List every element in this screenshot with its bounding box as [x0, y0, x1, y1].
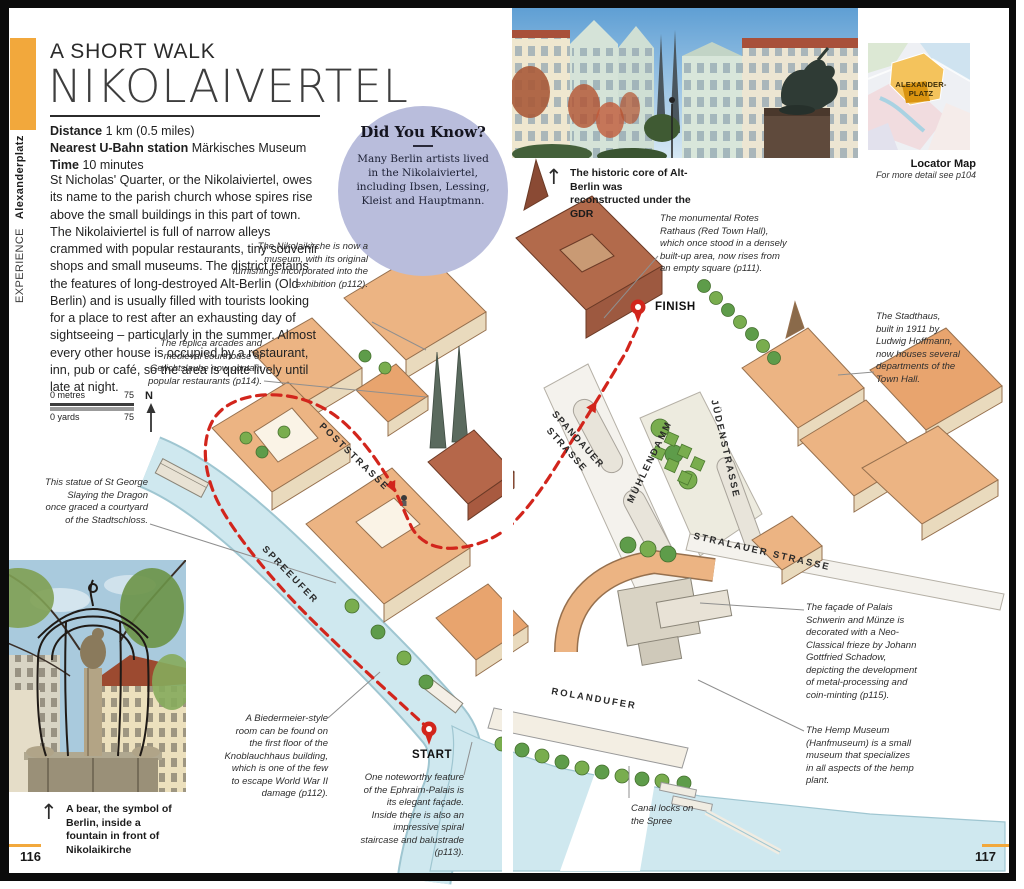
annotation-ephraim-palais: One noteworthy feature of the Ephraim-Pa…	[360, 772, 464, 860]
start-label: START	[412, 749, 452, 761]
frame-right	[1009, 0, 1016, 881]
time-label: Time	[50, 158, 79, 172]
frame-left	[0, 0, 9, 881]
left-pagenum-rule	[9, 844, 41, 847]
page-title: NIKOLAIVERTEL	[48, 60, 409, 113]
did-you-know-body: Many Berlin artists lived in the Nikolai…	[352, 153, 494, 208]
distance-value: 1 km (0.5 miles)	[106, 124, 195, 138]
annotation-st-george: This statue of St George Slaying the Dra…	[44, 477, 148, 527]
finish-label: FINISH	[655, 301, 696, 313]
annotation-palais-schwerin: The façade of Palais Schwerin and Münze …	[806, 602, 920, 702]
distance-label: Distance	[50, 124, 102, 138]
scale-bar-metres	[50, 403, 134, 407]
time-value: 10 minutes	[82, 158, 143, 172]
locator-title: Locator Map	[856, 158, 976, 170]
sidebar-tab	[10, 38, 36, 130]
scale-yards-start: 0 yards	[50, 413, 80, 423]
bottom-photo-caption: A bear, the symbol of Berlin, inside a f…	[66, 803, 182, 858]
annotation-canal-locks: Canal locks on the Spree	[631, 803, 695, 828]
up-arrow-icon: ↑	[545, 165, 563, 189]
map-scale-bar: 0 metres75 0 yards75	[50, 391, 134, 423]
did-you-know-divider	[413, 145, 433, 147]
north-label: N	[145, 390, 153, 402]
annotation-hemp-museum: The Hemp Museum (Hanfmuseum) is a small …	[806, 725, 914, 788]
annotation-stadthaus: The Stadthaus, built in 1911 by Ludwig H…	[876, 311, 960, 386]
frame-bottom	[0, 873, 1016, 881]
nikolaiviertel-square-photo	[512, 8, 858, 158]
scale-yards-end: 75	[124, 413, 134, 423]
up-arrow-icon: ↑	[40, 800, 58, 824]
scale-metres-start: 0 metres	[50, 391, 85, 401]
finish-pin-icon	[631, 300, 646, 324]
locator-caption: Locator Map For more detail see p104	[856, 158, 976, 180]
frame-top	[0, 0, 1016, 8]
sidebar-section-label: EXPERIENCEAlexanderplatz	[14, 135, 26, 303]
locator-subtitle: For more detail see p104	[856, 170, 976, 180]
right-page-number: 117	[975, 849, 996, 864]
book-spread: EXPERIENCEAlexanderplatz A SHORT WALK NI…	[0, 0, 1024, 889]
header-rule	[50, 115, 320, 117]
walk-info: Distance 1 km (0.5 miles) Nearest U-Bahn…	[50, 123, 322, 173]
bear-fountain-photo	[0, 560, 186, 792]
scale-metres-end: 75	[124, 391, 134, 401]
left-page-number: 116	[20, 849, 41, 864]
section-name: Alexanderplatz	[14, 135, 26, 219]
annotation-knoblauchhaus: A Biedermeier-style room can be found on…	[224, 713, 328, 801]
experience-label: EXPERIENCE	[14, 228, 26, 303]
scale-bar-yards	[50, 407, 134, 411]
station-label: Nearest U-Bahn station	[50, 141, 188, 155]
right-pagenum-rule	[982, 844, 1009, 847]
north-arrow-icon	[147, 403, 156, 432]
annotation-rotes-rathaus: The monumental Rotes Rathaus (Red Town H…	[660, 213, 792, 276]
annotation-nikolaikirche: The Nikolaikirche is now a museum, with …	[230, 241, 368, 291]
did-you-know-title: Did You Know?	[338, 123, 508, 141]
annotation-gerichtslaube: The replica arcades and medieval courtho…	[148, 338, 262, 388]
station-value: Märkisches Museum	[192, 141, 307, 155]
locator-area-label: ALEXANDER- PLATZ	[888, 80, 954, 99]
